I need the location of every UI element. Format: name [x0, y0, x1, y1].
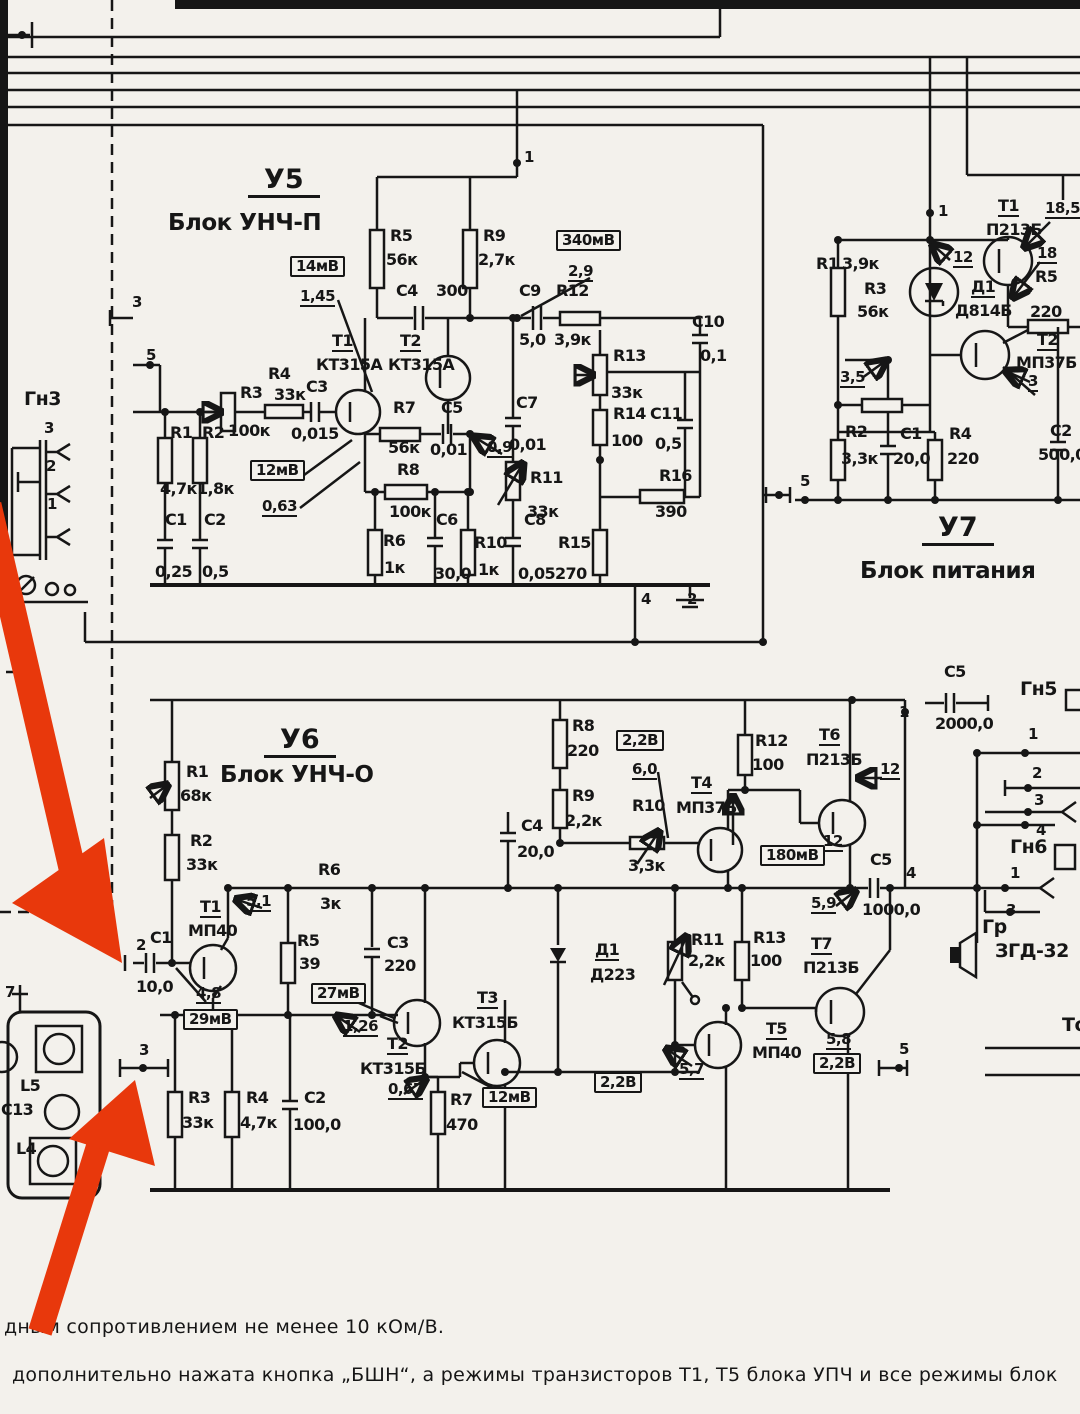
component-label: 1: [899, 705, 909, 720]
component-label: R3: [188, 1090, 210, 1106]
component-label: T1: [332, 333, 353, 352]
component-label: 12: [880, 762, 900, 780]
component-label: R13: [753, 930, 786, 946]
component-label: 3: [1034, 793, 1044, 808]
component-label: 340мВ: [556, 230, 621, 251]
component-label: 220: [384, 958, 416, 974]
component-label: 68к: [180, 788, 211, 804]
component-label: T7: [811, 936, 832, 955]
component-label: 18: [1037, 246, 1057, 264]
component-label: R8: [572, 718, 594, 734]
component-label: 270: [555, 566, 587, 582]
component-label: 470: [446, 1117, 478, 1133]
component-label: 0,5: [655, 436, 682, 452]
speaker-ref: Гр: [982, 918, 1007, 937]
component-label: 33к: [527, 504, 558, 520]
component-label: R8: [397, 462, 419, 478]
component-label: R3: [864, 281, 886, 297]
component-label: 5,0: [519, 332, 546, 348]
component-label: R2: [202, 425, 224, 441]
component-label: 10,0: [136, 979, 173, 995]
component-label: R15: [558, 535, 591, 551]
component-label: 5: [800, 474, 810, 489]
component-label: 2: [46, 459, 56, 474]
component-label: 5,7: [679, 1062, 704, 1080]
component-label: L4: [16, 1141, 36, 1157]
schematic-page: У5Блок УНЧ-П1R556кR92,7к14мВ1,45340мВ2,9…: [0, 0, 1080, 1414]
component-label: R4: [268, 366, 290, 382]
component-label: R16: [659, 468, 692, 484]
component-label: 3: [1028, 374, 1038, 392]
footnote-line-2: дополнительно нажата кнопка „БШН“, а реж…: [12, 1366, 1058, 1385]
component-label: П213Б: [806, 752, 862, 768]
block-u6-name: Блок УНЧ-О: [220, 764, 373, 787]
component-label: R11: [691, 932, 724, 948]
component-label: T6: [819, 727, 840, 746]
component-label: 3,3к: [841, 451, 878, 467]
component-label: T2: [400, 333, 421, 352]
component-label: C2: [1050, 423, 1072, 439]
component-label: R2: [190, 833, 212, 849]
component-label: C3: [387, 935, 409, 951]
component-label: 1000,0: [862, 902, 920, 918]
component-label: C11: [650, 406, 682, 422]
component-label: R1: [816, 256, 838, 272]
block-u7-id: У7: [922, 514, 994, 546]
component-label: 20,0: [893, 451, 930, 467]
component-label: 0,25: [155, 564, 192, 580]
component-label: 100: [752, 757, 784, 773]
component-label: T2: [387, 1036, 408, 1055]
component-label: 5,9: [811, 896, 836, 914]
component-label: То: [1062, 1016, 1080, 1035]
component-label: 220: [1030, 304, 1062, 320]
component-label: 1: [1010, 866, 1020, 881]
component-label: 7: [5, 985, 15, 1000]
component-label: 33к: [274, 387, 305, 403]
component-label: 1,26: [343, 1019, 378, 1037]
connector-gn3: Гн3: [24, 390, 61, 409]
component-label: C2: [304, 1090, 326, 1106]
component-label: 12мВ: [482, 1087, 537, 1108]
component-label: C4: [396, 283, 418, 299]
component-label: 29мВ: [183, 1009, 238, 1030]
component-label: R7: [393, 400, 415, 416]
component-label: П213Б: [803, 960, 859, 976]
component-label: C3: [306, 379, 328, 395]
component-label: 56к: [388, 440, 419, 456]
component-label: 3,9к: [554, 332, 591, 348]
component-label: КТ315А: [388, 357, 454, 373]
component-label: 56к: [857, 304, 888, 320]
component-label: П213Б: [986, 222, 1042, 238]
component-label: 0,05: [518, 566, 555, 582]
component-label: 1: [524, 150, 534, 165]
component-label: 3,9к: [842, 256, 879, 272]
component-label: 100: [750, 953, 782, 969]
component-label: R12: [755, 733, 788, 749]
component-label: 2,2В: [813, 1053, 861, 1074]
labels-layer: У5Блок УНЧ-П1R556кR92,7к14мВ1,45340мВ2,9…: [0, 0, 1080, 1414]
component-label: МП40: [188, 923, 237, 939]
component-label: 2: [136, 938, 146, 953]
component-label: 500,0: [1038, 447, 1080, 463]
component-label: 3: [44, 421, 54, 436]
component-label: L5: [20, 1078, 40, 1094]
component-label: 5: [899, 1042, 909, 1057]
block-u7-name: Блок питания: [860, 560, 1035, 583]
component-label: R6: [318, 862, 340, 878]
component-label: T4: [691, 775, 712, 794]
component-label: R9: [483, 228, 505, 244]
footnote-line-1: дным сопротивлением не менее 10 кОм/В.: [4, 1318, 444, 1337]
component-label: МП40: [752, 1045, 801, 1061]
component-label: 1к: [478, 562, 499, 578]
component-label: 4: [906, 866, 916, 881]
component-label: R14: [613, 406, 646, 422]
component-label: КТ315Б: [360, 1061, 426, 1077]
component-label: 3,3к: [628, 858, 665, 874]
component-label: 100к: [389, 504, 431, 520]
component-label: 14мВ: [290, 256, 345, 277]
component-label: 1к: [384, 560, 405, 576]
component-label: R10: [632, 798, 665, 814]
component-label: 180мВ: [760, 845, 825, 866]
connector-gn5: Гн5: [1020, 680, 1057, 699]
component-label: С5: [944, 664, 966, 680]
component-label: C1: [150, 930, 172, 946]
component-label: C13: [1, 1102, 33, 1118]
component-label: T3: [477, 990, 498, 1009]
component-label: C6: [436, 512, 458, 528]
component-label: 2000,0: [935, 716, 993, 732]
component-label: R5: [390, 228, 412, 244]
component-label: C1: [900, 426, 922, 442]
component-label: Д814Б: [955, 303, 1012, 319]
block-u5-name: Блок УНЧ-П: [168, 212, 321, 235]
component-label: 1: [47, 497, 57, 512]
component-label: 4,8: [196, 986, 221, 1004]
component-label: 12: [823, 834, 843, 852]
connector-gn6: Гн6: [1010, 838, 1047, 857]
component-label: 2: [687, 592, 697, 607]
component-label: 5,8: [826, 1032, 851, 1050]
component-label: 300: [436, 283, 468, 299]
component-label: 30,0: [434, 566, 471, 582]
component-label: 12: [953, 250, 973, 268]
component-label: R1: [186, 764, 208, 780]
component-label: МП37Б: [1016, 355, 1077, 371]
component-label: 0,1: [700, 348, 727, 364]
component-label: T2: [1037, 332, 1058, 351]
component-label: 100: [611, 433, 643, 449]
speaker-type: ЗГД-32: [995, 942, 1069, 961]
component-label: 2: [1032, 766, 1042, 781]
component-label: R11: [530, 470, 563, 486]
component-label: 2,2В: [616, 730, 664, 751]
component-label: R1: [170, 425, 192, 441]
component-label: 4,7к: [160, 481, 197, 497]
component-label: R7: [450, 1092, 472, 1108]
component-label: 4: [641, 592, 651, 607]
component-label: R4: [246, 1090, 268, 1106]
component-label: R2: [845, 424, 867, 440]
component-label: 4,7к: [240, 1115, 277, 1131]
component-label: 3: [139, 1043, 149, 1058]
component-label: 56к: [386, 252, 417, 268]
component-label: 5,1: [246, 894, 271, 912]
component-label: 2,2к: [688, 953, 725, 969]
component-label: T5: [766, 1021, 787, 1040]
component-label: 2,2к: [565, 813, 602, 829]
component-label: КТ315Б: [452, 1015, 518, 1031]
component-label: 0,01: [509, 437, 546, 453]
component-label: R9: [572, 788, 594, 804]
component-label: 2,2В: [594, 1072, 642, 1093]
component-label: 33к: [186, 857, 217, 873]
component-label: 0,015: [291, 426, 339, 442]
component-label: C5: [441, 400, 463, 416]
component-label: R5: [297, 933, 319, 949]
component-label: R13: [613, 348, 646, 364]
component-label: T1: [998, 198, 1019, 217]
component-label: 2,9: [568, 264, 593, 282]
component-label: 6,0: [632, 762, 657, 780]
component-label: Д1: [595, 942, 619, 961]
component-label: 5: [146, 348, 156, 363]
component-label: 100к: [228, 423, 270, 439]
component-label: 20,0: [517, 844, 554, 860]
component-label: 1: [1028, 727, 1038, 742]
component-label: R12: [556, 283, 589, 299]
component-label: 1: [938, 204, 948, 219]
component-label: 220: [567, 743, 599, 759]
component-label: 0,63: [262, 499, 297, 517]
block-u5-id: У5: [248, 166, 320, 198]
component-label: 33к: [182, 1115, 213, 1131]
block-u6-id: У6: [264, 726, 336, 758]
component-label: C1: [165, 512, 187, 528]
component-label: 0,5: [202, 564, 229, 580]
component-label: 220: [947, 451, 979, 467]
component-label: Д1: [971, 279, 995, 298]
component-label: R6: [383, 533, 405, 549]
component-label: C10: [692, 314, 724, 330]
component-label: 3к: [320, 896, 341, 912]
component-label: R4: [949, 426, 971, 442]
component-label: 390: [655, 504, 687, 520]
component-label: 100,0: [293, 1117, 341, 1133]
component-label: МП37Б: [676, 800, 737, 816]
component-label: 12мВ: [250, 460, 305, 481]
component-label: 3: [1006, 903, 1016, 918]
component-label: R3: [240, 385, 262, 401]
component-label: C4: [521, 818, 543, 834]
component-label: 3: [132, 295, 142, 310]
component-label: C5: [870, 852, 892, 868]
component-label: 1,45: [300, 289, 335, 307]
component-label: 0,67: [388, 1082, 423, 1100]
component-label: Д223: [590, 967, 635, 983]
component-label: R10: [474, 535, 507, 551]
component-label: C2: [204, 512, 226, 528]
component-label: T1: [200, 899, 221, 918]
component-label: R5: [1035, 269, 1057, 285]
component-label: C7: [516, 395, 538, 411]
component-label: 18,5: [1045, 201, 1080, 219]
component-label: 2,7к: [478, 252, 515, 268]
component-label: КТ315А: [316, 357, 382, 373]
component-label: 39: [299, 956, 320, 972]
component-label: 3,5: [840, 370, 865, 388]
component-label: 33к: [611, 385, 642, 401]
component-label: 1,8к: [197, 481, 234, 497]
component-label: 27мВ: [311, 983, 366, 1004]
component-label: 0,01: [430, 442, 467, 458]
component-label: C9: [519, 283, 541, 299]
